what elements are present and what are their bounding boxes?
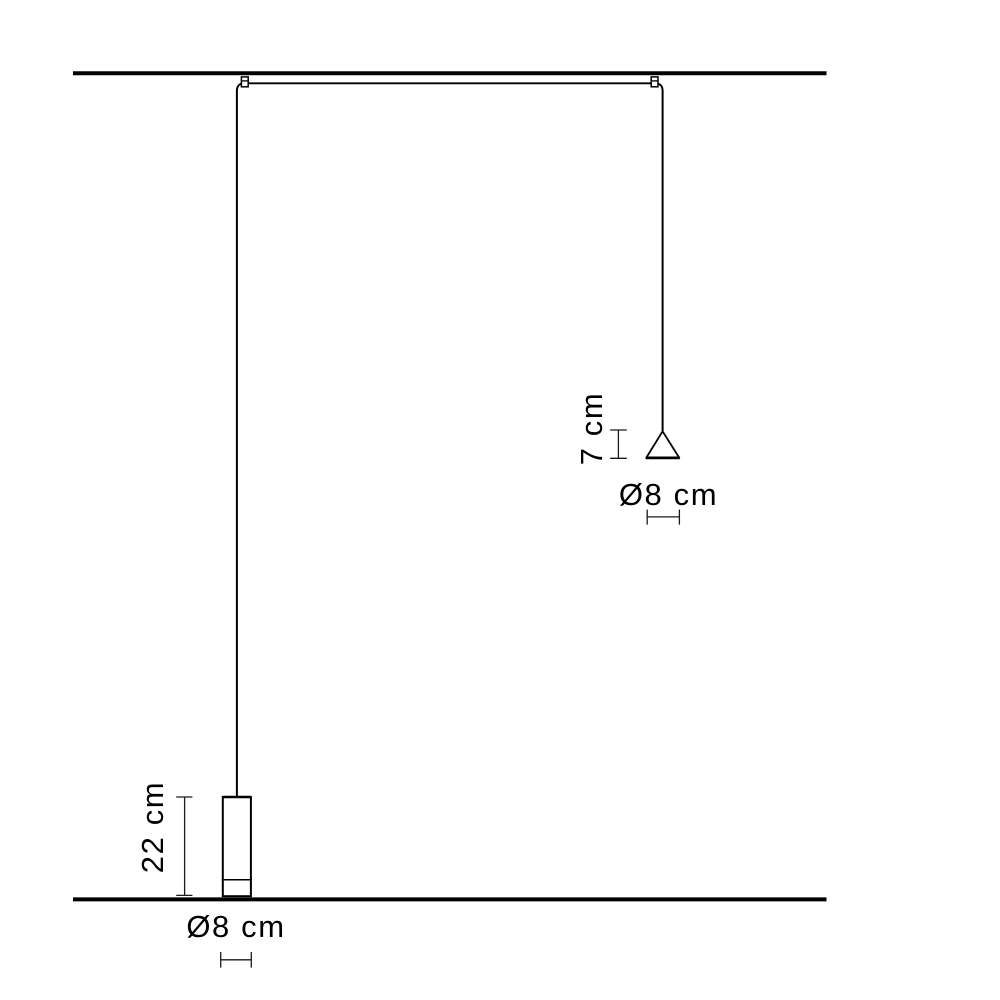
svg-text:Ø8 cm: Ø8 cm	[619, 477, 718, 512]
svg-text:7 cm: 7 cm	[574, 392, 609, 466]
svg-text:Ø8 cm: Ø8 cm	[186, 909, 285, 944]
svg-text:22 cm: 22 cm	[135, 781, 170, 873]
